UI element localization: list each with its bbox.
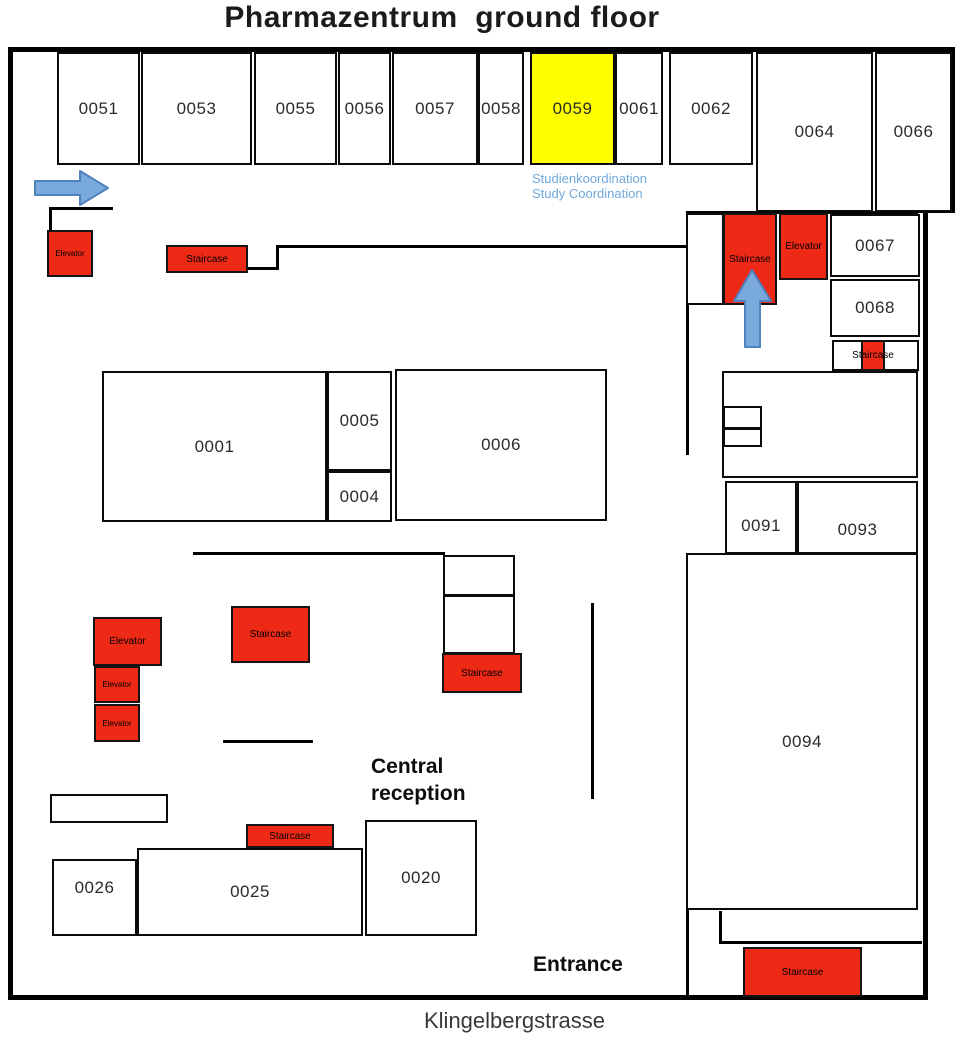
room-0055: 0055: [254, 52, 337, 165]
room-0056: 0056: [338, 52, 391, 165]
room-label: 0053: [177, 99, 217, 119]
wall-segment: [193, 552, 445, 555]
plan-canvas: Studienkoordination Study Coordination C…: [0, 0, 960, 1043]
elevator-label: Elevator: [102, 719, 131, 728]
room-label: 0004: [340, 487, 380, 507]
elevator-box: Elevator: [47, 230, 93, 277]
elevator-box: Elevator: [93, 617, 162, 666]
structure-box: [443, 555, 515, 596]
elevator-label: Elevator: [102, 680, 131, 689]
room-label: 0026: [75, 878, 115, 898]
room-label: 0057: [415, 99, 455, 119]
room-label: 0061: [619, 99, 659, 119]
elevator-box: Elevator: [94, 704, 140, 742]
elevator-label: Elevator: [109, 636, 146, 647]
room-label: 0055: [276, 99, 316, 119]
room-0026: 0026: [52, 859, 137, 936]
study-coordination-label: Studienkoordination Study Coordination: [532, 171, 647, 201]
structure-box: [50, 794, 168, 823]
room-label: 0091: [741, 516, 781, 536]
room-label: 0093: [838, 520, 878, 540]
room-0004: 0004: [327, 471, 392, 522]
room-0025: 0025: [137, 848, 363, 936]
structure-box: [723, 406, 762, 429]
wall-segment: [248, 267, 279, 270]
floor-plan: Pharmazentrum ground floor Studienkoordi…: [0, 0, 960, 1043]
staircase-label: Staircase: [250, 629, 292, 640]
elevator-label: Elevator: [785, 241, 822, 252]
room-0059: 0059: [530, 52, 615, 165]
staircase-box: Staircase: [442, 653, 522, 693]
room-0068: 0068: [830, 279, 920, 337]
room-label: 0025: [230, 882, 270, 902]
wall-segment: [276, 245, 688, 248]
elevator-box: Elevator: [94, 666, 140, 703]
wall-segment: [591, 603, 594, 799]
wall-segment: [686, 908, 689, 998]
room-0053: 0053: [141, 52, 252, 165]
room-0058: 0058: [478, 52, 524, 165]
blue-arrow-up-icon: [734, 270, 771, 347]
room-0094: 0094: [686, 553, 918, 910]
staircase-box: Staircase: [231, 606, 310, 663]
room-0051: 0051: [57, 52, 140, 165]
room-0066: 0066: [875, 52, 952, 212]
room-0061: 0061: [615, 52, 663, 165]
wall-segment: [276, 245, 279, 270]
room-label: 0094: [782, 732, 822, 752]
elevator-box: Elevator: [779, 213, 828, 280]
room-label: 0001: [195, 437, 235, 457]
structure-box: [723, 428, 762, 447]
room-0005: 0005: [327, 371, 392, 471]
staircase-label: Staircase: [782, 967, 824, 978]
room-label: 0005: [340, 411, 380, 431]
room-0091: 0091: [725, 481, 797, 554]
room-0020: 0020: [365, 820, 477, 936]
staircase-box: Staircase: [743, 947, 862, 997]
staircase-box: Staircase: [246, 824, 334, 848]
blue-arrow-right-icon: [35, 169, 110, 207]
wall-segment: [8, 47, 13, 1000]
wall-segment: [223, 740, 313, 743]
entrance-label: Entrance: [533, 951, 623, 978]
room-0006: 0006: [395, 369, 607, 521]
room-0001: 0001: [102, 371, 327, 522]
street-label: Klingelbergstrasse: [424, 1008, 605, 1034]
wall-segment: [49, 207, 113, 210]
staircase-box: Staircase: [861, 340, 885, 371]
room-0093: 0093: [797, 481, 918, 554]
structure-box: [443, 595, 515, 654]
room-0067: 0067: [830, 214, 920, 277]
room-label: 0067: [855, 236, 895, 256]
staircase-label: Staircase: [461, 668, 503, 679]
room-label: 0068: [855, 298, 895, 318]
staircase-label: Staircase: [852, 350, 894, 361]
room-label: 0020: [401, 868, 441, 888]
room-0064: 0064: [756, 52, 873, 212]
room-label: 0062: [691, 99, 731, 119]
room-label: 0066: [894, 122, 934, 142]
staircase-label: Staircase: [186, 254, 228, 265]
staircase-label: Staircase: [729, 254, 771, 265]
room-label: 0064: [795, 122, 835, 142]
wall-segment: [719, 911, 722, 944]
room-label: 0006: [481, 435, 521, 455]
room-label: 0056: [345, 99, 385, 119]
central-reception-label: Central reception: [371, 753, 466, 807]
elevator-label: Elevator: [55, 249, 84, 258]
wall-segment: [923, 208, 928, 1000]
room-0057: 0057: [392, 52, 478, 165]
room-label: 0058: [481, 99, 521, 119]
staircase-box: Staircase: [166, 245, 248, 273]
room-label: 0059: [553, 99, 593, 119]
room-label: 0051: [79, 99, 119, 119]
staircase-label: Staircase: [269, 831, 311, 842]
wall-segment: [719, 941, 922, 944]
structure-box: [686, 213, 724, 305]
room-0062: 0062: [669, 52, 753, 165]
